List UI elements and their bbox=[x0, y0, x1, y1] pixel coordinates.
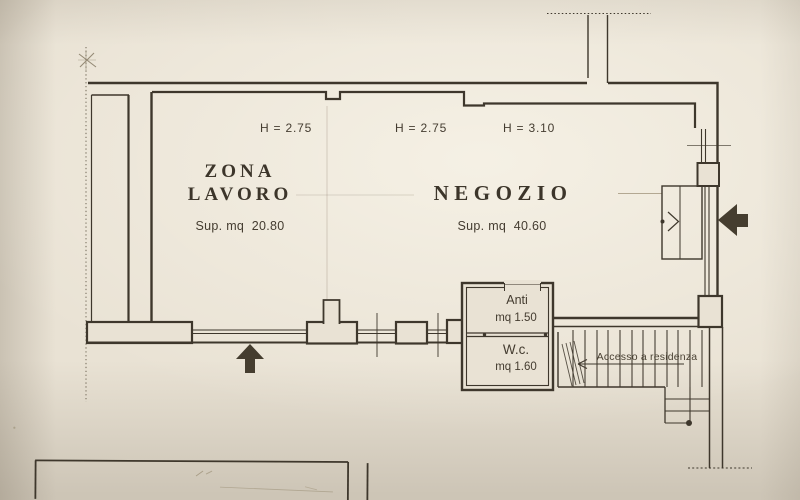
lower-plan-fragment bbox=[13, 427, 368, 500]
display-cabinet bbox=[618, 186, 702, 259]
height-label-1: H = 2.75 bbox=[260, 122, 312, 135]
pillars bbox=[307, 300, 463, 344]
stair-access-note: Accesso a residenza bbox=[597, 352, 698, 364]
stair-turn bbox=[665, 387, 709, 426]
shaft-walls bbox=[547, 14, 651, 84]
scanned-floor-plan: H = 2.75 H = 2.75 H = 3.10 ZONA LAVORO S… bbox=[0, 0, 800, 500]
floor-plan-drawing bbox=[0, 0, 800, 500]
entrance-arrow-up-icon bbox=[236, 344, 264, 373]
room-area-wc: mq 1.60 bbox=[495, 361, 537, 374]
stairs bbox=[558, 327, 752, 468]
entrance-arrow-left-icon bbox=[718, 204, 748, 236]
chevron-right-icon bbox=[668, 212, 679, 231]
height-label-3: H = 3.10 bbox=[503, 122, 555, 135]
newel-post bbox=[686, 420, 692, 426]
paper-speck bbox=[13, 427, 15, 429]
room-area-zona-lavoro: Sup. mq 20.80 bbox=[196, 220, 285, 234]
room-name-wc: W.c. bbox=[503, 343, 529, 358]
room-name-zona-lavoro-line2: LAVORO bbox=[188, 185, 293, 206]
room-area-negozio: Sup. mq 40.60 bbox=[458, 220, 547, 234]
paper-creases bbox=[296, 106, 414, 320]
corridor-wall bbox=[553, 318, 722, 327]
height-label-2: H = 2.75 bbox=[395, 122, 447, 135]
room-area-anti: mq 1.50 bbox=[495, 312, 537, 325]
x-mark-icon bbox=[78, 50, 96, 70]
inner-walls bbox=[87, 92, 695, 343]
pillar-tab bbox=[324, 300, 340, 324]
outer-walls bbox=[88, 83, 718, 296]
door-opening bbox=[504, 280, 541, 291]
room-name-zona-lavoro-line1: ZONA bbox=[205, 162, 276, 183]
room-name-negozio: NEGOZIO bbox=[434, 182, 573, 205]
wall-foot bbox=[87, 322, 192, 343]
right-wall bbox=[687, 129, 731, 327]
pencil-marks bbox=[196, 471, 333, 492]
boundary-line bbox=[78, 47, 96, 402]
room-name-anti: Anti bbox=[506, 294, 528, 308]
